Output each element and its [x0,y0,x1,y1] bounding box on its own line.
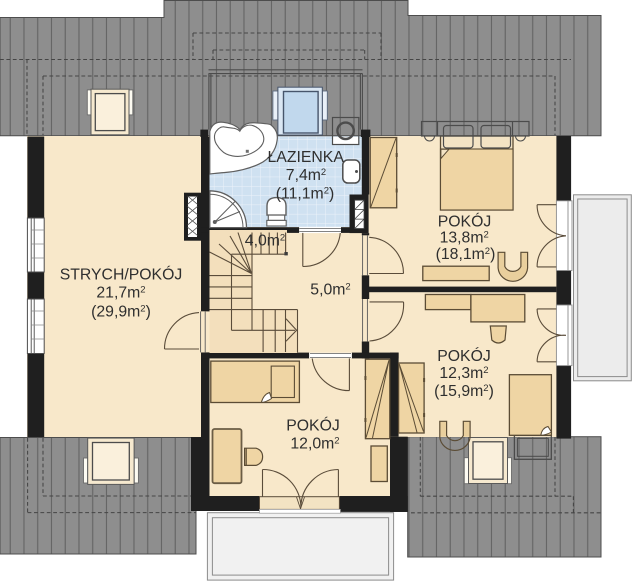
svg-text:POKÓJ: POKÓJ [438,211,492,230]
svg-text:5,0m2: 5,0m2 [310,282,350,299]
svg-text:POKÓJ: POKÓJ [437,346,491,365]
svg-text:12,0m2: 12,0m2 [290,436,339,453]
svg-text:ŁAZIENKA: ŁAZIENKA [268,149,345,166]
svg-text:21,7m2: 21,7m2 [96,285,145,302]
svg-text:12,3m2: 12,3m2 [439,365,488,382]
svg-text:4,0m2: 4,0m2 [245,233,285,250]
svg-text:POKÓJ: POKÓJ [286,416,340,435]
svg-text:STRYCH/POKÓJ: STRYCH/POKÓJ [60,265,183,284]
svg-text:7,4m2: 7,4m2 [286,167,326,184]
svg-text:13,8m2: 13,8m2 [440,230,489,247]
